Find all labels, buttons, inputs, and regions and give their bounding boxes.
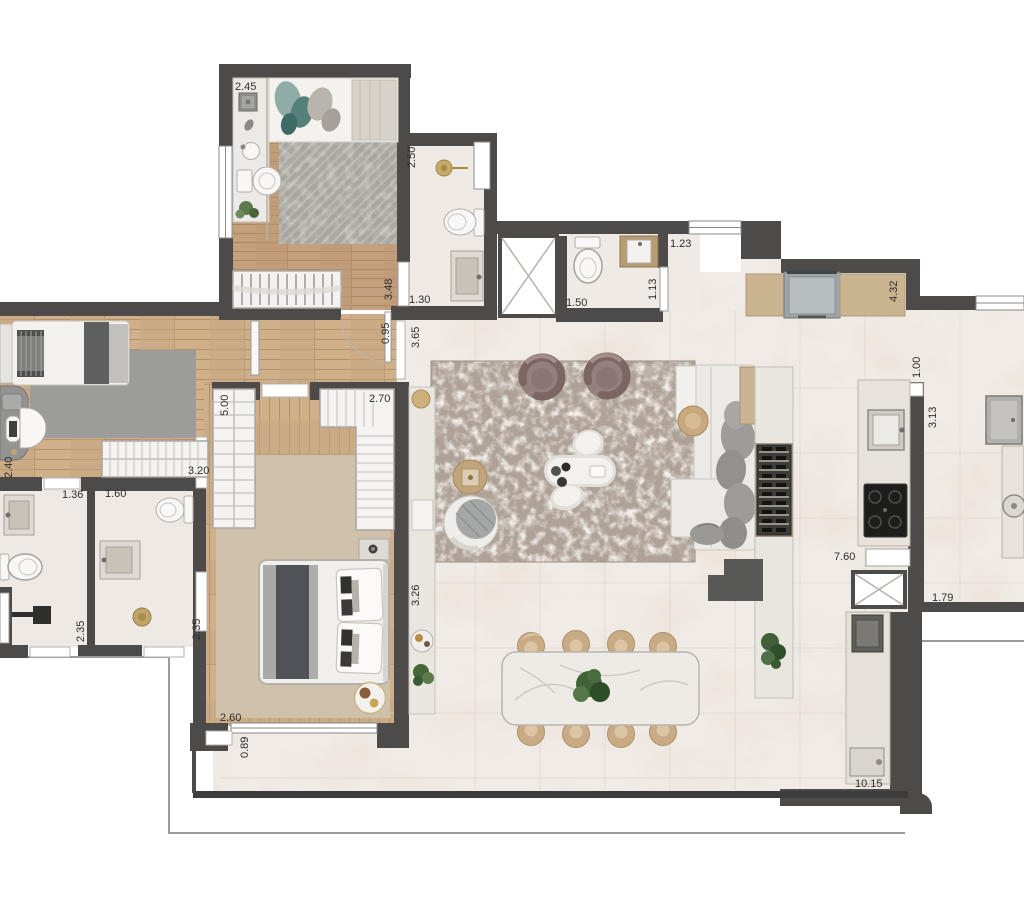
svg-text:2.45: 2.45: [235, 81, 256, 93]
svg-text:2.40: 2.40: [3, 457, 15, 478]
svg-text:1.50: 1.50: [566, 297, 587, 309]
svg-text:2.50: 2.50: [406, 147, 418, 168]
svg-text:5.00: 5.00: [219, 395, 231, 416]
svg-text:1.23: 1.23: [670, 238, 691, 250]
svg-text:2.35: 2.35: [191, 619, 203, 640]
svg-text:1.79: 1.79: [932, 592, 953, 604]
svg-text:1.60: 1.60: [105, 488, 126, 500]
svg-text:1.36: 1.36: [62, 489, 83, 501]
svg-text:3.26: 3.26: [410, 585, 422, 606]
svg-text:2.35: 2.35: [75, 621, 87, 642]
svg-text:1.13: 1.13: [647, 279, 659, 300]
svg-text:1.30: 1.30: [409, 294, 430, 306]
svg-text:10.15: 10.15: [855, 778, 883, 790]
svg-text:7.60: 7.60: [834, 551, 855, 563]
svg-text:4.32: 4.32: [888, 281, 900, 302]
svg-text:0.89: 0.89: [239, 737, 251, 758]
svg-text:3.20: 3.20: [188, 465, 209, 477]
svg-text:3.48: 3.48: [383, 279, 395, 300]
svg-text:2.60: 2.60: [220, 712, 241, 724]
svg-text:2.70: 2.70: [369, 393, 390, 405]
svg-text:0.95: 0.95: [380, 323, 392, 344]
svg-text:3.65: 3.65: [410, 327, 422, 348]
svg-text:3.13: 3.13: [927, 407, 939, 428]
svg-text:1.00: 1.00: [911, 357, 923, 378]
